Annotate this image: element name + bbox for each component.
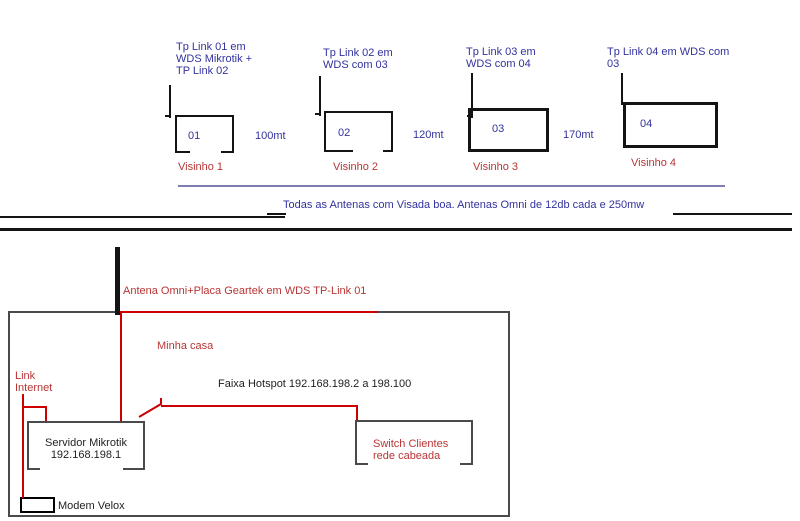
red-cable-lines	[0, 0, 800, 521]
network-diagram: Tp Link 01 em WDS Mikrotik + TP Link 02 …	[0, 0, 800, 521]
cable-internet-to-server	[23, 407, 46, 421]
antenna-mast-icon	[319, 76, 321, 116]
cable-server-diagonal	[139, 398, 161, 417]
antenna-mast-icon	[169, 85, 171, 118]
antenna-mast-icon	[471, 73, 473, 118]
cable-hotspot-run	[161, 406, 357, 420]
antenna-mast-icon	[621, 73, 623, 105]
omni-antenna-mast-icon	[115, 247, 120, 315]
